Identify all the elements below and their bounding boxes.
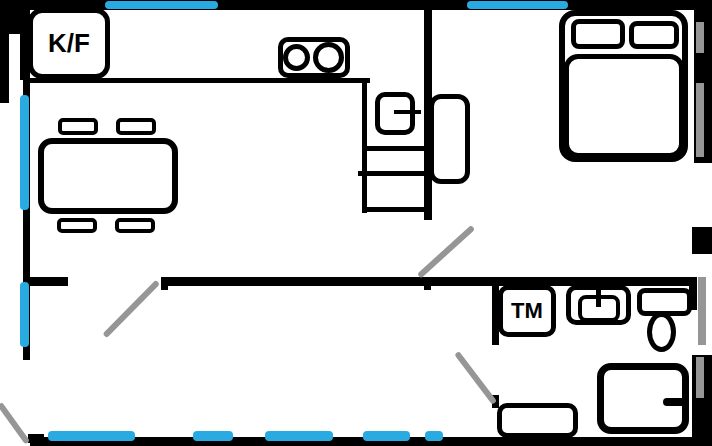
kitchen-faucet-icon bbox=[394, 110, 421, 114]
door-hinge-tick-hall bbox=[161, 277, 168, 290]
kitchen-cabinet-divider-3 bbox=[362, 207, 428, 212]
fridge-freezer-box: K/F bbox=[28, 8, 110, 79]
toilet-bowl bbox=[647, 312, 676, 352]
door-swing-bathroom bbox=[454, 351, 497, 405]
door-swing-bedroom bbox=[417, 225, 475, 278]
window-right-1 bbox=[696, 22, 704, 53]
window-right-2 bbox=[696, 83, 704, 157]
entry-wall-tick bbox=[28, 434, 44, 443]
door-swing-hall bbox=[102, 280, 160, 338]
window-top-2 bbox=[467, 1, 568, 9]
chair-top-left bbox=[58, 118, 98, 135]
bed-mattress bbox=[564, 54, 684, 158]
window-left-2 bbox=[20, 282, 29, 347]
washing-machine-box: TM bbox=[498, 285, 556, 337]
floor-plan: K/F TM bbox=[0, 0, 712, 446]
chair-bottom-right bbox=[115, 218, 155, 233]
window-bottom-4 bbox=[363, 431, 410, 441]
washbasin-faucet-icon bbox=[596, 285, 601, 307]
door-swing-entry bbox=[0, 402, 30, 444]
window-bottom-5 bbox=[425, 431, 443, 441]
shower-handle-icon bbox=[663, 398, 689, 406]
dining-table bbox=[38, 138, 178, 214]
wall-right-pier bbox=[692, 227, 712, 254]
pillow-left bbox=[571, 19, 625, 49]
window-right-4 bbox=[696, 357, 704, 398]
washing-machine-label: TM bbox=[511, 298, 543, 324]
chair-top-right bbox=[116, 118, 156, 135]
kitchen-cabinet-divider-1 bbox=[362, 146, 428, 151]
stove-burner-left-icon bbox=[283, 44, 310, 71]
wardrobe bbox=[429, 94, 470, 184]
window-top-1 bbox=[105, 1, 218, 9]
pillow-right bbox=[629, 21, 679, 49]
door-stop-tick-bedroom bbox=[424, 277, 431, 290]
window-bottom-3 bbox=[265, 431, 333, 441]
window-bottom-1 bbox=[48, 431, 135, 441]
chair-bottom-left bbox=[57, 218, 97, 233]
stove-burner-right-icon bbox=[313, 42, 344, 73]
window-right-3 bbox=[698, 277, 706, 345]
fridge-freezer-label: K/F bbox=[48, 28, 90, 59]
window-bottom-2 bbox=[193, 431, 233, 441]
wall-interior-horizontal-left-stub bbox=[23, 277, 68, 286]
wall-left-outer-strip bbox=[0, 0, 9, 103]
window-left-1 bbox=[20, 95, 29, 210]
kitchen-cabinet-divider-2 bbox=[358, 171, 428, 176]
bathroom-cabinet bbox=[497, 403, 578, 438]
